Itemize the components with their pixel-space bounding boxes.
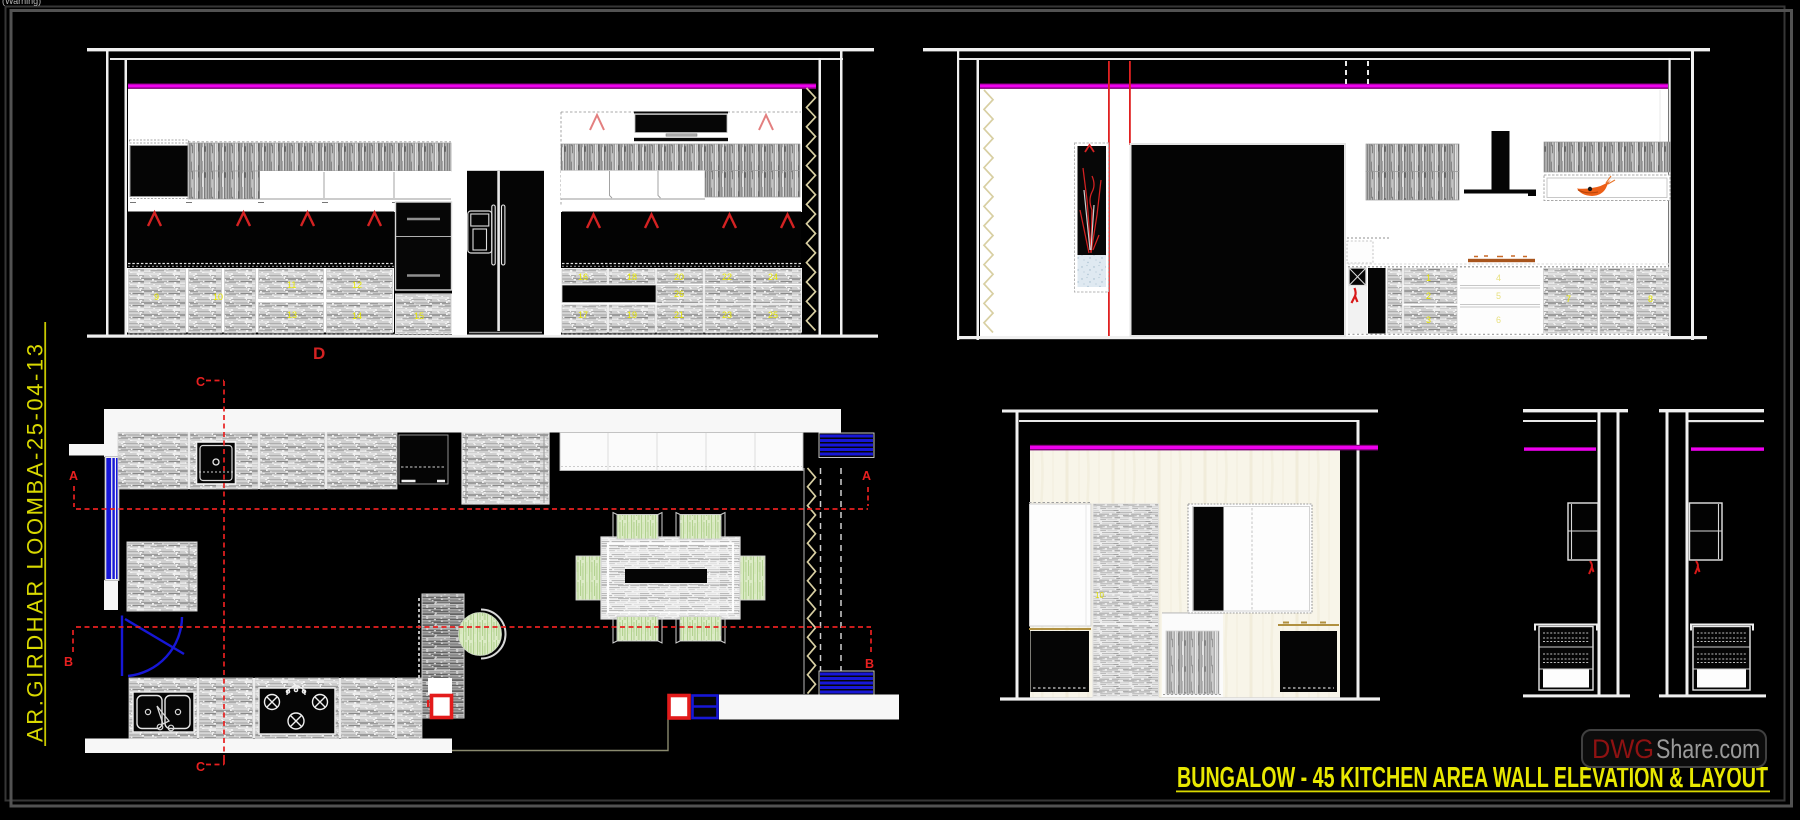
svg-text:A: A xyxy=(862,469,871,483)
svg-text:A: A xyxy=(69,469,78,483)
svg-text:C: C xyxy=(196,375,205,389)
svg-text:5: 5 xyxy=(1496,291,1501,301)
svg-text:20: 20 xyxy=(674,272,684,282)
svg-text:22: 22 xyxy=(722,272,732,282)
svg-text:D: D xyxy=(313,344,325,363)
svg-text:DWG: DWG xyxy=(1592,734,1654,764)
svg-text:AR.GIRDHAR LOOMBA-25-04-13: AR.GIRDHAR LOOMBA-25-04-13 xyxy=(23,344,48,742)
svg-text:24: 24 xyxy=(768,272,778,282)
svg-text:B: B xyxy=(865,657,874,671)
svg-text:11: 11 xyxy=(287,280,296,290)
svg-text:Share.com: Share.com xyxy=(1656,734,1760,764)
svg-text:17: 17 xyxy=(578,310,588,320)
svg-text:10: 10 xyxy=(1095,591,1104,600)
svg-text:19: 19 xyxy=(627,310,637,320)
svg-text:C: C xyxy=(196,760,205,774)
svg-text:7: 7 xyxy=(1566,294,1571,304)
svg-text:16: 16 xyxy=(578,272,588,282)
svg-text:25: 25 xyxy=(768,310,778,320)
svg-text:1: 1 xyxy=(1426,273,1431,283)
svg-text:9: 9 xyxy=(154,292,159,302)
svg-text:8: 8 xyxy=(1648,294,1653,304)
svg-text:15: 15 xyxy=(414,311,424,321)
svg-text:10: 10 xyxy=(213,292,223,302)
svg-text:21: 21 xyxy=(674,310,684,320)
svg-text:12: 12 xyxy=(352,280,362,290)
svg-text:2: 2 xyxy=(1426,291,1431,301)
svg-text:4: 4 xyxy=(1496,273,1501,283)
svg-text:6: 6 xyxy=(1496,315,1501,325)
svg-text:13: 13 xyxy=(287,310,297,320)
svg-text:23: 23 xyxy=(722,310,732,320)
svg-text:14: 14 xyxy=(352,311,362,321)
svg-text:18: 18 xyxy=(627,272,637,282)
svg-text:B: B xyxy=(64,655,73,669)
svg-text:3: 3 xyxy=(1426,315,1431,325)
svg-text:(Warning): (Warning) xyxy=(2,0,41,6)
svg-text:26: 26 xyxy=(674,289,684,299)
